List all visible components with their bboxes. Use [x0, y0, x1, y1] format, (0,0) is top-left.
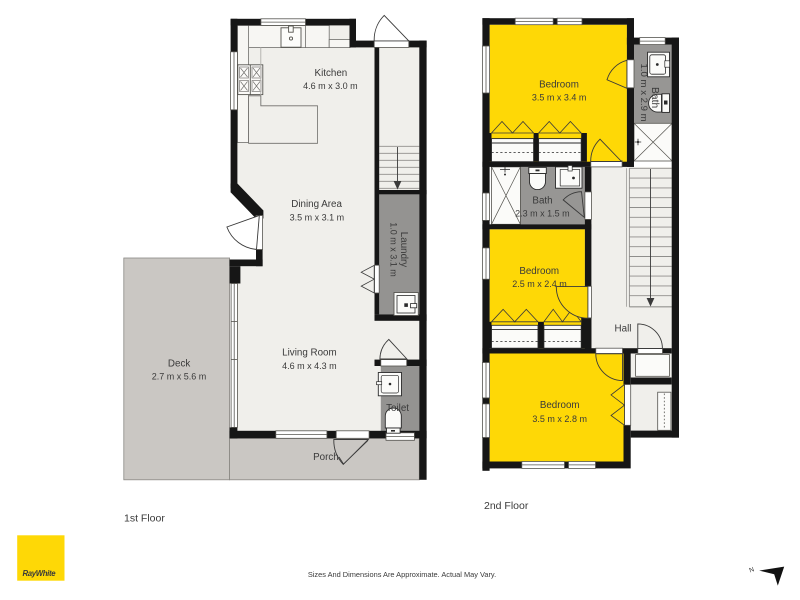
svg-text:4.6 m x 3.0 m: 4.6 m x 3.0 m — [303, 81, 358, 91]
svg-text:Hall: Hall — [615, 324, 632, 335]
svg-text:Living Room: Living Room — [282, 348, 336, 359]
svg-text:3.5 m x 3.4 m: 3.5 m x 3.4 m — [532, 92, 587, 102]
svg-text:Bedroom: Bedroom — [519, 266, 559, 277]
svg-text:Bath: Bath — [649, 87, 660, 108]
svg-text:Bath: Bath — [532, 196, 552, 207]
svg-text:Toilet: Toilet — [386, 403, 409, 414]
svg-text:3.5 m x 2.8 m: 3.5 m x 2.8 m — [532, 414, 587, 424]
svg-text:1.0 m x 2.9 m: 1.0 m x 2.9 m — [638, 64, 649, 122]
svg-text:2nd Floor: 2nd Floor — [484, 500, 529, 512]
svg-text:2.7 m x 5.6 m: 2.7 m x 5.6 m — [152, 371, 207, 381]
svg-text:Deck: Deck — [168, 358, 190, 369]
svg-text:1st Floor: 1st Floor — [124, 513, 165, 525]
svg-text:2.5 m x 2.4 m: 2.5 m x 2.4 m — [512, 279, 567, 289]
svg-text:Laundry: Laundry — [398, 232, 409, 268]
svg-text:RayWhite: RayWhite — [23, 569, 57, 578]
svg-text:Dining Area: Dining Area — [291, 199, 342, 210]
svg-text:2.3 m x 1.5 m: 2.3 m x 1.5 m — [515, 208, 570, 218]
svg-text:4.6 m x 4.3 m: 4.6 m x 4.3 m — [282, 361, 337, 371]
svg-text:1.0 m x 3.1 m: 1.0 m x 3.1 m — [389, 222, 399, 277]
svg-text:Bedroom: Bedroom — [540, 400, 580, 411]
svg-text:Porch: Porch — [313, 452, 339, 463]
svg-text:Kitchen: Kitchen — [315, 68, 348, 79]
svg-text:3.5 m x 3.1 m: 3.5 m x 3.1 m — [290, 213, 345, 223]
svg-text:Bedroom: Bedroom — [539, 80, 579, 91]
svg-text:Sizes And Dimensions Are Appro: Sizes And Dimensions Are Approximate. Ac… — [308, 570, 496, 579]
